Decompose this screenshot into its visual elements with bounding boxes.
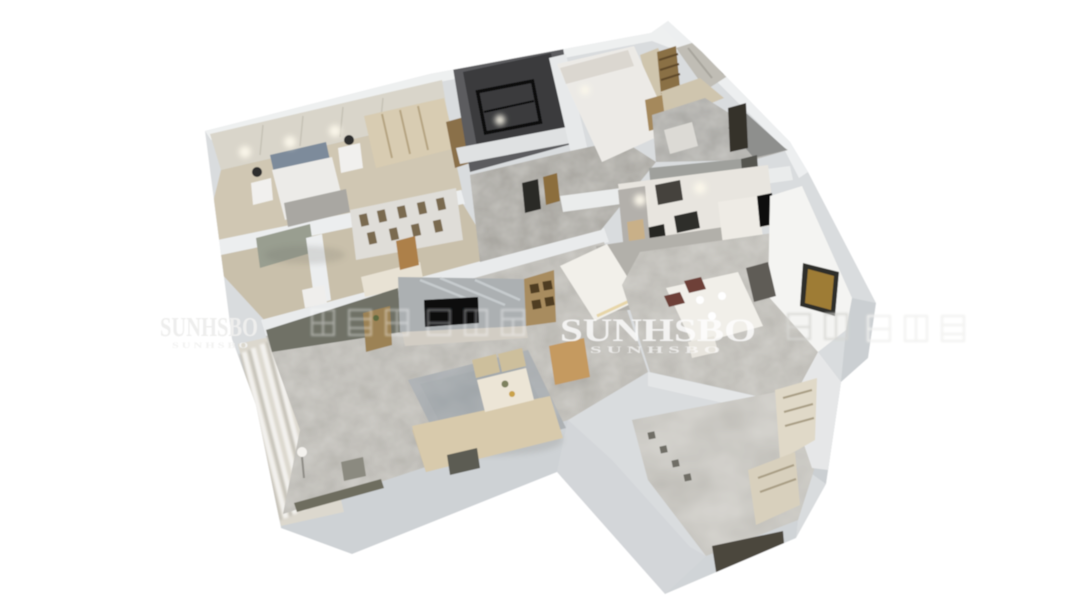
- svg-text:S U N H S B O: S U N H S B O: [590, 345, 720, 355]
- svg-text:S U N H S B O: S U N H S B O: [172, 341, 248, 350]
- svg-text:SUNHSBO: SUNHSBO: [160, 312, 258, 342]
- svg-text:SUNHSBO: SUNHSBO: [560, 313, 756, 349]
